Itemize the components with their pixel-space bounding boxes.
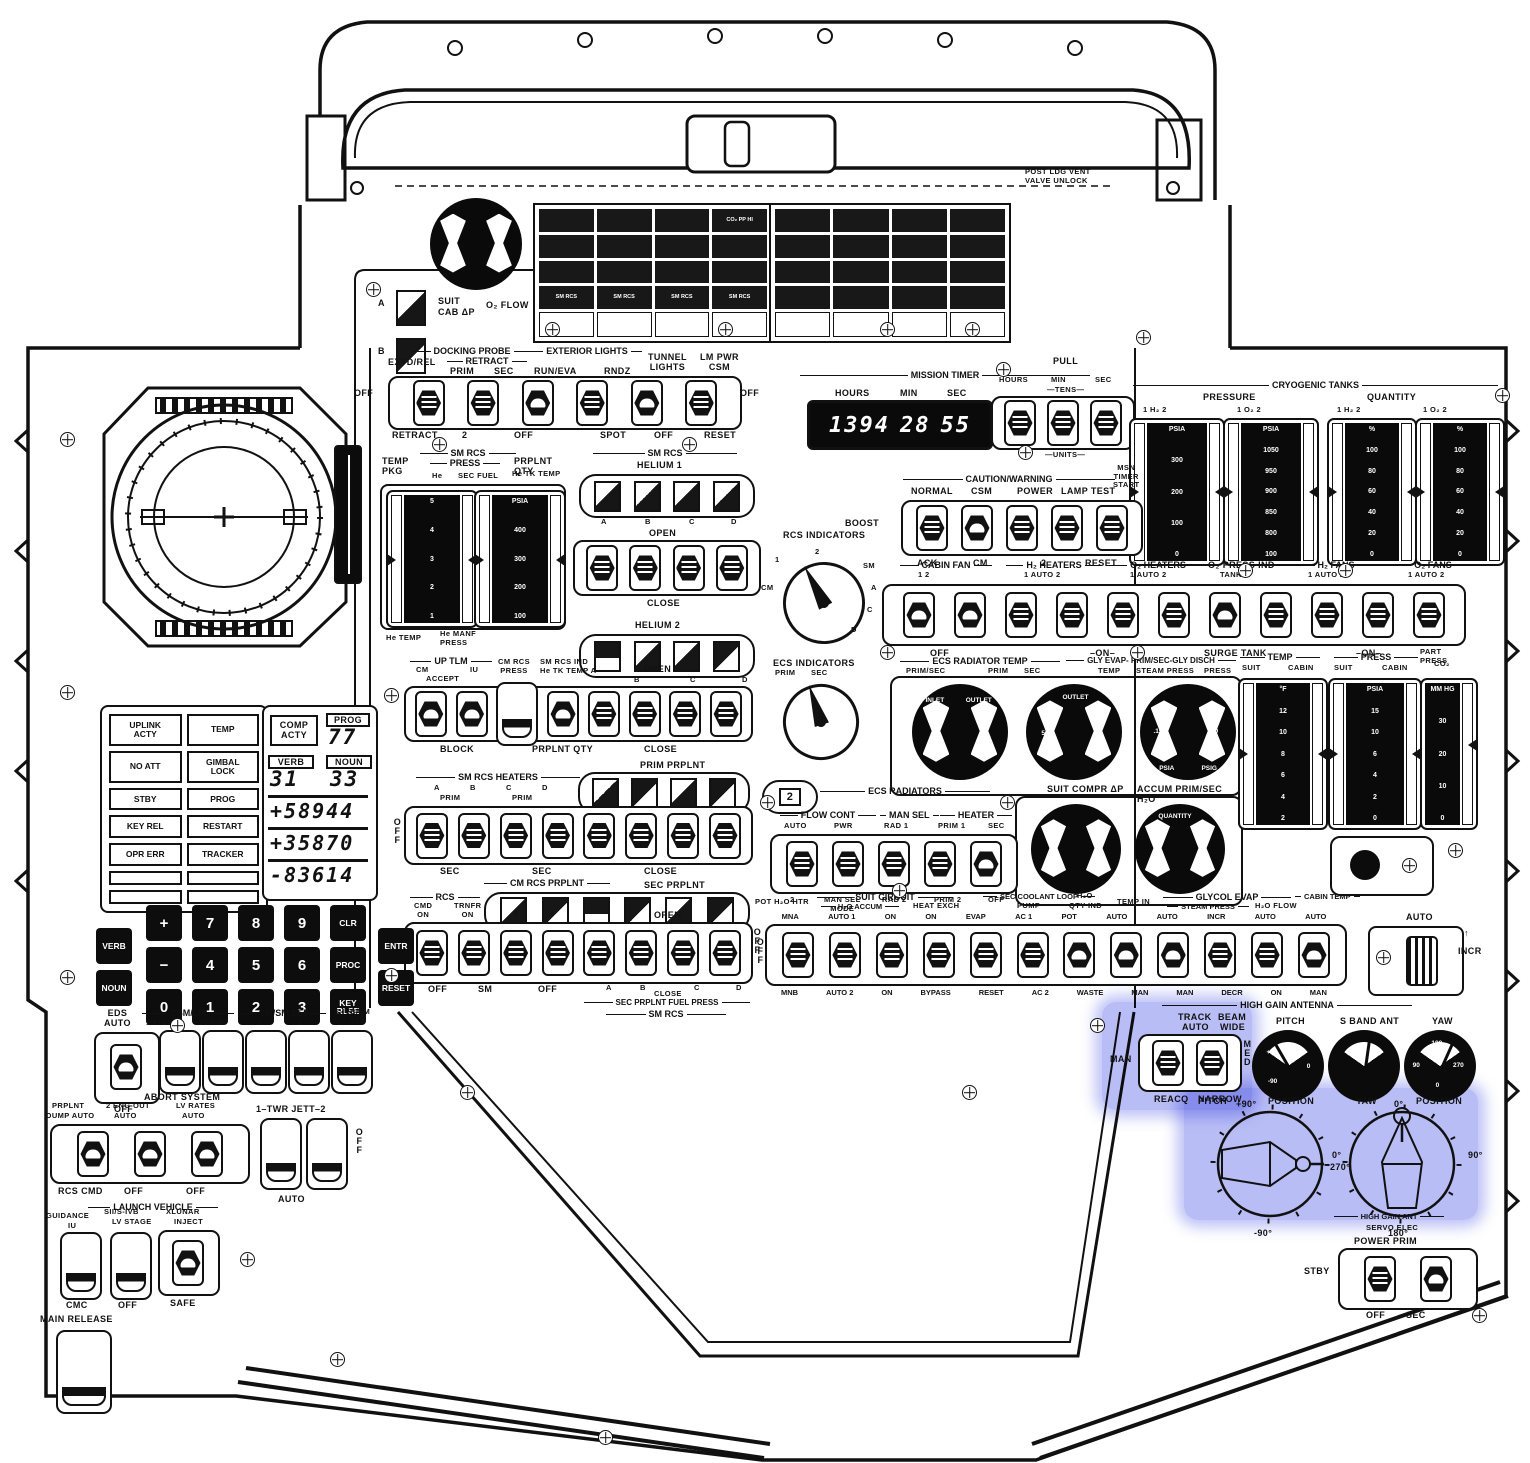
label: 20 [1439, 751, 1447, 758]
label: 300 [1171, 457, 1183, 464]
sec-prplnt-label: SEC PRPLNT [644, 880, 705, 890]
pot-h2o-htr-label: POT H₂O HTR [755, 898, 809, 907]
label[interactable]: 6 [284, 947, 320, 983]
label[interactable]: 9 [284, 905, 320, 941]
toggle-switch[interactable] [625, 813, 657, 859]
cm-sm-sep-2-switch[interactable] [288, 1030, 330, 1094]
toggle-switch[interactable] [916, 505, 948, 551]
label: GIMBAL LOCK [187, 751, 260, 783]
ecs-radiators-group: ECS RADIATORS [820, 786, 990, 796]
toggle-switch[interactable] [588, 691, 620, 737]
fdai-side-gauge [334, 445, 362, 584]
toggle-switch[interactable] [1209, 592, 1241, 638]
label: MNB [781, 988, 798, 997]
guidance-label: GUIDANCE [46, 1212, 89, 1221]
helium1-talkbacks [579, 474, 755, 518]
label [655, 209, 710, 232]
close2-label: CLOSE [644, 866, 677, 876]
talkback-indicator [592, 778, 619, 809]
one-label: 1 [514, 910, 519, 919]
docking-switch-bank [388, 376, 742, 430]
toggle-switch[interactable] [134, 1131, 166, 1177]
incr-arrow: ↑ [1464, 928, 1469, 938]
yaw-position-dial[interactable] [1340, 1102, 1464, 1228]
label [597, 235, 652, 258]
sm-rcs-ind-label: SM RCS IND He TK TEMP A [540, 658, 596, 675]
label[interactable]: PROC [330, 947, 366, 983]
toggle-switch[interactable] [685, 380, 717, 426]
guard-switch[interactable] [496, 682, 538, 746]
toggle-switch[interactable] [629, 545, 661, 591]
label: 1 [430, 613, 434, 620]
toggle-switch[interactable] [77, 1131, 109, 1177]
run-eva-label: RUN/EVA [534, 366, 577, 376]
suit1-label: SUIT [1242, 664, 1261, 673]
toggle-switch[interactable] [954, 592, 986, 638]
label: AC 1 [1015, 912, 1032, 921]
label: SM RCS [712, 286, 767, 309]
ecs-indicators-selector-knob[interactable] [773, 674, 869, 770]
dsky-keys-entr[interactable]: ENTRRESET [378, 928, 414, 1006]
block-label: BLOCK [440, 744, 474, 754]
toggle-switch[interactable] [876, 932, 908, 978]
label[interactable]: − [146, 947, 182, 983]
mission-timer-display: 1394 28 55 [807, 400, 993, 450]
label: 6 [1373, 751, 1377, 758]
toggle-switch[interactable] [1047, 400, 1079, 446]
ecs-indicators-label: ECS INDICATORS [773, 658, 855, 668]
toggle-switch[interactable] [415, 691, 447, 737]
suit-cab-label: SUIT [438, 296, 460, 306]
toggle-switch[interactable] [1006, 505, 1038, 551]
label: SM RCS [597, 286, 652, 309]
toggle-switch[interactable] [1004, 400, 1036, 446]
prim1-label: PRIM [440, 794, 460, 803]
label: 4 [1373, 772, 1377, 779]
pump-label: PUMP [1017, 902, 1040, 911]
main-release-switch[interactable] [56, 1330, 112, 1414]
pitch-label: PITCH [1276, 1016, 1305, 1026]
eds-auto-label: EDS AUTO [104, 1008, 131, 1029]
ecs-rad-talkback: 2 [779, 788, 802, 807]
toggle-switch[interactable] [970, 841, 1002, 887]
label: WASTE [1077, 988, 1104, 997]
label: °F [1279, 686, 1286, 693]
dsky-keys-verb-noun[interactable]: VERBNOUN [96, 928, 132, 1006]
t-rad1: RAD 1 [884, 822, 909, 831]
man-sel-group: MAN SEL [880, 810, 936, 820]
sub-3: 1 AUTO 2 [1130, 571, 1167, 580]
lv-guidance-switch[interactable] [60, 1232, 102, 1300]
pressure-label: PRESSURE [1203, 392, 1256, 402]
letter-a: A [601, 518, 607, 527]
csm-lm-sep-2-switch[interactable] [202, 1030, 244, 1094]
sep2-label: SEP-2 [198, 1019, 222, 1028]
talkback-indicator [634, 481, 661, 512]
screw-icon [880, 645, 895, 660]
annunciator-grid-left: CO₂ PP HISM RCSSM RCSSM RCSSM RCS [533, 203, 773, 343]
label: 200 [514, 584, 526, 591]
off-label2: OFF [654, 430, 673, 440]
open-label: OPEN [644, 664, 671, 674]
screw-icon [962, 1085, 977, 1100]
toggle-switch[interactable] [631, 380, 663, 426]
label [597, 209, 652, 232]
toggle-switch[interactable] [576, 380, 608, 426]
label: 20 [1456, 530, 1464, 537]
toggle-switch[interactable] [1251, 932, 1283, 978]
label [950, 209, 1005, 232]
letter-d: D [731, 518, 737, 527]
screw-icon [1018, 445, 1033, 460]
screw-icon [60, 970, 75, 985]
auto-label: AUTO [1406, 912, 1433, 922]
cabin-temp-knob-section: AUTO ↑ INCR [1362, 902, 1482, 1002]
toggle-switch[interactable] [1096, 505, 1128, 551]
lv-stage-switch[interactable] [110, 1232, 152, 1300]
label: 40 [1456, 509, 1464, 516]
label[interactable]: CLR [330, 905, 366, 941]
toggle-switch[interactable] [1413, 592, 1445, 638]
label: RESTART [187, 815, 260, 838]
heaters-bank [404, 806, 753, 865]
toggle-switch[interactable] [1158, 592, 1190, 638]
t-auto: AUTO [784, 822, 807, 831]
toggle-switch[interactable] [191, 1131, 223, 1177]
label [655, 235, 710, 258]
cw-switch-bank [901, 500, 1143, 556]
accept-label: ACCEPT [426, 675, 459, 684]
track-label: TRACK [1178, 1012, 1212, 1022]
suit-compr-label: SUIT COMPR ΔP [1047, 784, 1124, 794]
screw-icon [1472, 1308, 1487, 1323]
toggle-switch[interactable] [500, 813, 532, 859]
toggle-switch[interactable] [1063, 932, 1095, 978]
sub-2: 1 AUTO 2 [1024, 571, 1061, 580]
toggle-switch[interactable] [1152, 1040, 1184, 1086]
sivb-label: S-IVB/LM [334, 1008, 370, 1017]
normal-label: NORMAL [911, 486, 953, 496]
label[interactable]: 7 [192, 905, 228, 941]
toggle-switch[interactable] [1204, 932, 1236, 978]
heaters-group: SM RCS HEATERS [416, 772, 580, 782]
cabin-gauges-section: TEMP PRESS PART PRESS SUIT CABIN SUIT CA… [1238, 648, 1470, 830]
toggle-switch[interactable] [1107, 592, 1139, 638]
sec1-label: SEC [440, 866, 460, 876]
toggle-switch[interactable] [542, 813, 574, 859]
toggle-switch[interactable] [923, 932, 955, 978]
toggle-switch[interactable] [970, 932, 1002, 978]
label[interactable]: 8 [238, 905, 274, 941]
man-label: MAN [1110, 1054, 1132, 1064]
he-press-gauge: 54321 [386, 490, 478, 628]
screw-icon [366, 282, 381, 297]
spot-label: SPOT [600, 430, 626, 440]
screw-icon [545, 322, 560, 337]
toggle-switch[interactable] [1017, 932, 1049, 978]
b-c: C [694, 984, 700, 993]
press-group: PRESS [430, 458, 500, 468]
heater-group: HEATER [940, 810, 1012, 820]
label: 0 [1373, 815, 1377, 822]
label[interactable]: VERB [96, 928, 132, 964]
suit-cab-a-label: A [378, 298, 385, 308]
toggle-switch[interactable] [629, 691, 661, 737]
h-b: B [470, 784, 476, 793]
open3-label: OPEN [654, 910, 681, 920]
toggle-switch[interactable] [716, 545, 748, 591]
toggle-switch[interactable] [522, 380, 554, 426]
min-label: MIN [900, 388, 918, 398]
label: 2 [1281, 815, 1285, 822]
head-4: 1 O₂ 2 [1423, 406, 1447, 415]
toggle-switch[interactable] [1196, 1040, 1228, 1086]
twr-jett-2-switch[interactable] [306, 1118, 348, 1190]
sec-fuel-label: SEC FUEL [458, 472, 498, 481]
toggle-switch[interactable] [1005, 592, 1037, 638]
label: % [1457, 426, 1463, 433]
units-label: —UNITS— [1045, 451, 1085, 460]
label [539, 209, 594, 232]
abort-bank [50, 1124, 250, 1184]
label: AUTO 1 [828, 912, 855, 921]
o2-fans-group: O₂ FANS [1390, 560, 1476, 570]
screw-icon [60, 685, 75, 700]
power-prim-label: POWER PRIM [1354, 1236, 1417, 1246]
env-switch-bank [882, 584, 1466, 646]
eds-auto-switch[interactable] [110, 1044, 142, 1090]
toggle-switch[interactable] [456, 691, 488, 737]
off-label: OFF [514, 430, 533, 440]
sec2-label: SEC [532, 866, 552, 876]
lamp-test-label: LAMP TEST [1061, 486, 1115, 496]
toggle-switch[interactable] [1157, 932, 1189, 978]
toggle-switch[interactable] [1298, 932, 1330, 978]
screw-icon [460, 1085, 475, 1100]
forward-hatch-assembly [295, 8, 1240, 208]
o2-flow-label: O₂ FLOW [486, 300, 529, 310]
msn-timer-start-label: MSN TIMER START [1113, 464, 1139, 490]
suit-cab-talkback-a [396, 290, 426, 326]
label: 10 [1439, 783, 1447, 790]
label: 0 [1441, 815, 1445, 822]
toggle-switch[interactable] [961, 505, 993, 551]
sec-label: SEC [494, 366, 514, 376]
label [712, 261, 767, 284]
toggle-switch[interactable] [673, 545, 705, 591]
toggle-switch[interactable] [1260, 592, 1292, 638]
toggle-switch[interactable] [542, 930, 574, 976]
h-a: A [434, 784, 440, 793]
label[interactable]: 5 [238, 947, 274, 983]
pos-1: 1 [775, 556, 780, 565]
xlunar-inject-switch[interactable] [172, 1240, 204, 1286]
label: 1050 [1263, 447, 1279, 454]
label [833, 286, 888, 309]
toggle-switch[interactable] [625, 930, 657, 976]
one-label: 1 [258, 1019, 263, 1028]
rcs-row-bank [404, 922, 753, 984]
h2-fans-group: H₂ FANS [1286, 560, 1386, 570]
toggle-switch[interactable] [458, 930, 490, 976]
toggle-switch[interactable] [1362, 592, 1394, 638]
toggle-switch[interactable] [903, 592, 935, 638]
prim-label: PRIM [988, 667, 1008, 676]
r1-c: C [690, 676, 696, 685]
label[interactable]: ENTR [378, 928, 414, 964]
label: AUTO [1157, 912, 1178, 921]
csm-lm-sep-1-switch[interactable] [159, 1030, 201, 1094]
prim2-label: PRIM [512, 794, 532, 803]
label [950, 261, 1005, 284]
toggle-switch[interactable] [782, 932, 814, 978]
lm-pwr-label: LM PWR CSM [700, 352, 739, 373]
power-label: POWER [1017, 486, 1053, 496]
label: MNA [782, 912, 799, 921]
screw-icon [1090, 1018, 1105, 1033]
toggle-switch[interactable] [1420, 1256, 1452, 1302]
xlunar-label: XLUNAR [166, 1208, 200, 1217]
label: ON [881, 988, 892, 997]
screw-icon [880, 322, 895, 337]
timer-min-digits: 28 [900, 413, 931, 438]
head-2: 1 O₂ 2 [1237, 406, 1261, 415]
toggle-switch[interactable] [832, 841, 864, 887]
label: 950 [1265, 468, 1277, 475]
toggle-switch[interactable] [413, 380, 445, 426]
label: TRACKER [187, 843, 260, 866]
toggle-switch[interactable] [458, 813, 490, 859]
cabin-temp-knob[interactable] [1406, 936, 1438, 986]
toggle-switch[interactable] [786, 841, 818, 887]
letter-b: B [645, 518, 651, 527]
label [109, 890, 182, 904]
cm-sm-sep-1-switch[interactable] [245, 1030, 287, 1094]
qty-ind-label: QTY IND [1069, 902, 1102, 911]
timer-hours-digits: 1394 [829, 413, 890, 438]
temp-group: TEMP [1240, 652, 1320, 662]
b-sm: SM [478, 984, 492, 994]
xlunar-frame [158, 1230, 220, 1296]
label: ON [1271, 988, 1282, 997]
cryo-group: CRYOGENIC TANKS [1133, 380, 1498, 390]
label: ON [925, 912, 936, 921]
label[interactable]: + [146, 905, 182, 941]
toggle-switch[interactable] [500, 930, 532, 976]
auto-below-label: AUTO [278, 1194, 305, 1204]
letter-c: C [689, 518, 695, 527]
toggle-switch[interactable] [667, 813, 699, 859]
pitch-position-dial[interactable] [1208, 1104, 1334, 1226]
toggle-switch[interactable] [1056, 592, 1088, 638]
label [187, 871, 260, 885]
label[interactable]: NOUN [96, 970, 132, 1006]
b-off2: OFF [538, 984, 557, 994]
press-label: PRESS [1204, 667, 1231, 676]
toggle-switch[interactable] [924, 841, 956, 887]
toggle-switch[interactable] [710, 691, 742, 737]
sm-rcs-group2: SM RCS [593, 448, 737, 458]
toggle-switch[interactable] [878, 841, 910, 887]
two-label: 2 [462, 430, 467, 440]
toggle-switch[interactable] [416, 813, 448, 859]
toggle-switch[interactable] [586, 545, 618, 591]
rndz-label: RNDZ [604, 366, 631, 376]
main-release-label: MAIN RELEASE [40, 1314, 113, 1324]
toggle-switch[interactable] [1110, 932, 1142, 978]
set-min-label: MIN [1051, 376, 1066, 385]
h2o-label: H₂O [1077, 892, 1093, 901]
prim-label: PRIM [775, 669, 795, 678]
label[interactable]: 4 [192, 947, 228, 983]
timer-sec-digits: 55 [940, 413, 971, 438]
toggle-switch[interactable] [709, 930, 741, 976]
beam-label: BEAM [1218, 1012, 1246, 1022]
toggle-switch[interactable] [583, 813, 615, 859]
docking-probe-group: DOCKING PROBE [412, 346, 532, 356]
toggle-switch[interactable] [709, 813, 741, 859]
sub-1: 1 2 [918, 571, 930, 580]
toggle-switch[interactable] [1311, 592, 1343, 638]
retract-below-label: RETRACT [392, 430, 438, 440]
label: 4 [430, 527, 434, 534]
label: 800 [1265, 530, 1277, 537]
sivb-lm-sep-switch[interactable] [331, 1030, 373, 1094]
off-vertical: OFF [392, 818, 403, 845]
ecs-radiator-temp-group: ECS RADIATOR TEMP [900, 656, 1060, 666]
label: BYPASS [921, 988, 951, 997]
dial-m90-label: -90° [1254, 1228, 1272, 1238]
toggle-switch[interactable] [667, 930, 699, 976]
pos-a: A [871, 584, 877, 593]
twr-jett-label: 1–TWR JETT–2 [256, 1104, 326, 1114]
indicator-dot [1350, 850, 1380, 880]
toggle-switch[interactable] [547, 691, 579, 737]
toggle-switch[interactable] [583, 930, 615, 976]
label: UPLINK ACTY [109, 714, 182, 746]
toggle-switch[interactable] [1364, 1256, 1396, 1302]
label: 60 [1456, 488, 1464, 495]
fuel-press-group: SEC PRPLNT FUEL PRESS [584, 998, 750, 1007]
label: 100 [1454, 447, 1466, 454]
label: AUTO [1305, 912, 1326, 921]
temp-in-label: TEMP IN [1117, 898, 1150, 907]
talkback-indicator [713, 481, 740, 512]
main-release-section: MAIN RELEASE [36, 1312, 166, 1427]
toggle-switch[interactable] [467, 380, 499, 426]
steam-press-group: STEAM PRESS [1167, 902, 1249, 911]
screw-icon [1238, 563, 1253, 578]
label: DECR [1221, 988, 1242, 997]
b-d: D [736, 984, 742, 993]
press-gauge: PSIA15106420 [1328, 678, 1422, 830]
toggle-switch[interactable] [1051, 505, 1083, 551]
twr-jett-1-switch[interactable] [260, 1118, 302, 1190]
screw-icon [384, 968, 399, 983]
press-group: PRESS [1334, 652, 1418, 662]
env-switch-row-section: CABIN FAN H₂ HEATERS O₂ HEATERS O₂ PRESS… [878, 556, 1468, 662]
toggle-switch[interactable] [829, 932, 861, 978]
toggle-switch[interactable] [416, 930, 448, 976]
gly-evap-group: GLY EVAP- PRIM/SEC-GLY DISCH [1066, 656, 1236, 665]
h2o-accum-group: H₂O ACCUM [821, 902, 899, 911]
prplnt-qty-label: PRPLNT QTY [532, 744, 593, 754]
rcs-indicators-section: RCS INDICATORS CM 1 2 SM A C D [755, 522, 890, 657]
off-label: OFF [1366, 1310, 1385, 1320]
toggle-switch[interactable] [669, 691, 701, 737]
label [655, 261, 710, 284]
toggle-switch[interactable] [1090, 400, 1122, 446]
